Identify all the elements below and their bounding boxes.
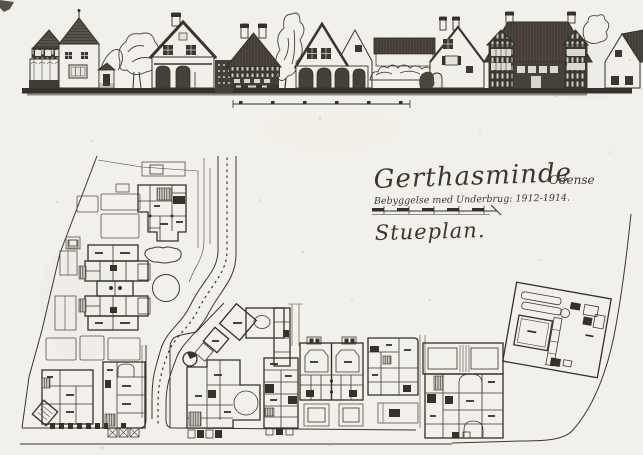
elevation-scale-bar bbox=[233, 100, 410, 108]
house-elevation-halftimber bbox=[226, 24, 281, 88]
house-plan-villa bbox=[183, 304, 290, 366]
house-elevation-double bbox=[484, 12, 592, 88]
house-elevation-villa bbox=[29, 9, 123, 88]
plan-subtitle: Bebyggelse med Underbrug: 1912-1914. bbox=[373, 193, 570, 207]
house-plan-se bbox=[425, 374, 503, 438]
title-block: Gerthasminde Odense Bebyggelse med Under… bbox=[372, 158, 595, 245]
scanned-architectural-drawing: Gerthasminde Odense Bebyggelse med Under… bbox=[0, 0, 643, 455]
block-nw bbox=[66, 160, 198, 249]
corner-scribble bbox=[0, 0, 14, 12]
plan-location: Odense bbox=[549, 173, 595, 187]
site-boundary-right bbox=[452, 214, 631, 443]
block-s-center bbox=[170, 303, 425, 438]
house-plan-s2 bbox=[264, 358, 298, 428]
plan-label: Stueplan. bbox=[375, 218, 486, 245]
roundabout-circle bbox=[153, 275, 180, 302]
house-elevation-arcade-1 bbox=[150, 13, 216, 88]
street-elevation bbox=[0, 0, 643, 108]
garden-squares bbox=[108, 428, 139, 437]
drawing-canvas: Gerthasminde Odense Bebyggelse med Under… bbox=[0, 0, 643, 455]
block-se bbox=[423, 282, 611, 438]
ground-line bbox=[22, 88, 632, 96]
house-plan-nw bbox=[138, 185, 186, 241]
house-plan-s1 bbox=[187, 360, 260, 428]
house-elevation-arcade-2 bbox=[295, 24, 372, 88]
walled-garden bbox=[423, 343, 503, 374]
fence-ticks-s bbox=[188, 428, 293, 438]
plan-title: Gerthasminde bbox=[373, 158, 572, 195]
pond-oval bbox=[145, 247, 181, 263]
house-plan-sw1 bbox=[32, 370, 93, 426]
house-plan-farm bbox=[503, 282, 611, 377]
house-plan-twin bbox=[300, 337, 363, 426]
house-plan-s3 bbox=[368, 338, 418, 423]
